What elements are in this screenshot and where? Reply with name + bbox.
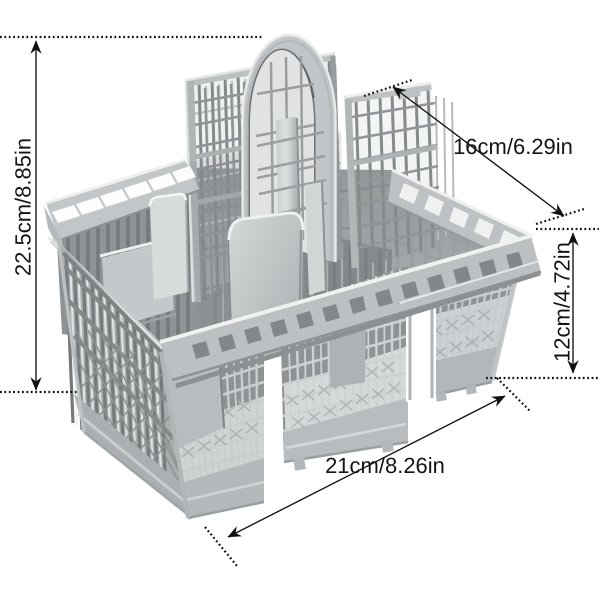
svg-text:21cm/8.26in: 21cm/8.26in — [325, 453, 445, 478]
svg-text:12cm/4.72in: 12cm/4.72in — [549, 242, 574, 362]
svg-text:22.5cm/8.85in: 22.5cm/8.85in — [10, 138, 35, 276]
svg-text:16cm/6.29in: 16cm/6.29in — [453, 134, 573, 159]
